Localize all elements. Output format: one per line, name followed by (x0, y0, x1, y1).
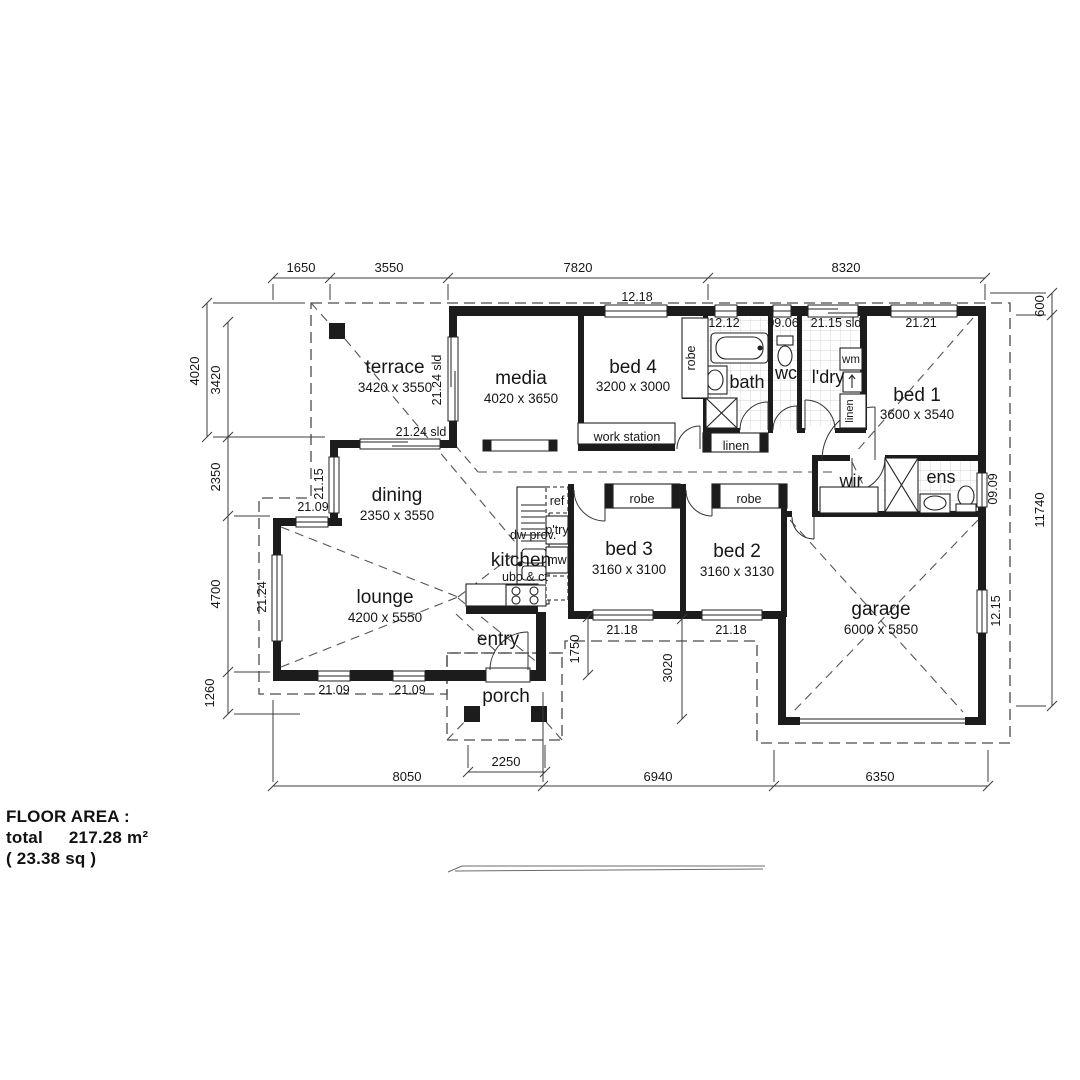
dim-3020: 3020 (660, 654, 675, 683)
room-label-bath: bath (729, 372, 764, 392)
terrace-post (329, 323, 345, 339)
room-dims-bed3: 3160 x 3100 (592, 562, 666, 577)
wlabel-2109-s1: 21.09 (318, 683, 349, 697)
bed3-door (574, 490, 605, 521)
room-label-porch: porch (482, 686, 530, 707)
dim-top-7820: 7820 (564, 260, 593, 275)
kitchen-cupboard (546, 576, 568, 600)
room-label-terrace: terrace (365, 357, 424, 378)
wlabel-0906: 09.06 (767, 316, 798, 330)
floor-area-block: FLOOR AREA : total217.28 m² ( 23.38 sq ) (6, 806, 148, 869)
floor-area-total-value: 217.28 m² (69, 827, 148, 848)
room-label-bed2: bed 2 (713, 541, 761, 562)
wc-toilet (777, 336, 793, 366)
wlabel-2118-bed3: 21.18 (606, 623, 637, 637)
room-label-bed1: bed 1 (893, 385, 941, 406)
floor-area-heading: FLOOR AREA : (6, 806, 148, 827)
dim-bottom-8050: 8050 (393, 769, 422, 784)
linen-label-bath: linen (723, 439, 749, 453)
room-dims-bed2: 3160 x 3130 (700, 564, 774, 579)
ref-label: ref (550, 494, 565, 508)
room-dims-dining: 2350 x 3550 (360, 508, 434, 523)
ens-vanity (920, 494, 950, 513)
wlabel-2115: 21.15 (312, 468, 326, 499)
wlabel-1215: 12.15 (989, 595, 1003, 626)
room-dims-bed1: 3600 x 3540 (880, 407, 954, 422)
room-dims-terrace: 3420 x 3550 (358, 380, 432, 395)
scan-artifact (448, 866, 765, 872)
floor-area-alt-value: ( 23.38 sq ) (6, 848, 148, 869)
wlabel-2124sld-v: 21.24 sld (430, 355, 444, 406)
room-label-bed3: bed 3 (605, 539, 653, 560)
wlabel-0909: 09.09 (986, 473, 1000, 504)
floor-area-total: total217.28 m² (6, 827, 148, 848)
window-21.18-bed3 (593, 610, 653, 620)
room-label-wc: wc (774, 363, 797, 383)
dimension-lines (202, 273, 1057, 791)
room-dims-garage: 6000 x 5850 (844, 622, 918, 637)
floorplan-page: { "floor_area": { "heading": "FLOOR AREA… (0, 0, 1080, 1080)
dim-right-600: 600 (1032, 295, 1047, 317)
room-label-kitchen: kitchen (491, 550, 551, 571)
ens-shower (885, 458, 918, 512)
porch-post (464, 706, 480, 722)
bath-shower (706, 398, 737, 428)
wlabel-2118-bed2: 21.18 (715, 623, 746, 637)
wlabel-1218: 12.18 (621, 290, 652, 304)
floor-area-total-label: total (6, 827, 43, 848)
dim-top-8320: 8320 (832, 260, 861, 275)
wlabel-2115sld: 21.15 sld (811, 316, 862, 330)
dim-left-4020: 4020 (187, 357, 202, 386)
media-opening (483, 440, 557, 451)
garage-door-opening (800, 719, 965, 723)
bed4-door (677, 426, 700, 449)
room-label-wir: wir (839, 471, 863, 491)
dim-right-11740: 11740 (1032, 492, 1047, 527)
wm-label: wm (841, 354, 860, 366)
room-dims-lounge: 4200 x 5550 (348, 610, 422, 625)
dim-1750: 1750 (567, 635, 582, 664)
dim-bottom-6940: 6940 (644, 769, 673, 784)
bathtub (711, 333, 768, 363)
bed2-door (686, 490, 712, 516)
window-21.24-lounge-w (272, 555, 282, 641)
room-label-ens: ens (926, 467, 955, 487)
work-station-label: work station (593, 430, 661, 444)
dim-left-4700: 4700 (208, 580, 223, 609)
wlabel-1212: 12.12 (708, 316, 739, 330)
sliding-window-21.24-dining (360, 439, 440, 449)
wlabel-2124sld-h: 21.24 sld (396, 425, 447, 439)
room-label-ldry: l'dry (812, 367, 844, 387)
window-21.09-lounge-s2 (393, 671, 425, 681)
window-12.15 (977, 590, 987, 633)
room-label-garage: garage (851, 599, 910, 620)
mw-label: mw (547, 553, 567, 567)
room-label-entry: entry (477, 629, 520, 650)
robe-label-bed4: robe (684, 345, 698, 370)
dim-porch-2250: 2250 (492, 754, 521, 769)
room-label-dining: dining (372, 485, 423, 506)
dw-prov-label: dw prov. (510, 528, 556, 542)
wlabel-2124: 21.24 (255, 581, 269, 612)
window-21.15-dining (329, 457, 339, 513)
room-dims-bed4: 3200 x 3000 (596, 379, 670, 394)
robe-label-bed2: robe (736, 492, 761, 506)
wlabel-2109-s2: 21.09 (394, 683, 425, 697)
dim-top-1650: 1650 (287, 260, 316, 275)
window-21.18-bed2 (702, 610, 762, 620)
wlabel-2109-n: 21.09 (297, 500, 328, 514)
entry-threshold (486, 668, 530, 682)
wlabel-2121: 21.21 (905, 316, 936, 330)
porch-post (531, 706, 547, 722)
window-12.18 (605, 305, 667, 317)
dim-bottom-6350: 6350 (866, 769, 895, 784)
dim-top-3550: 3550 (375, 260, 404, 275)
linen-label-ldry: linen (844, 399, 856, 422)
dim-left-3420: 3420 (208, 366, 223, 395)
ubo-ct-label: ubo & ct (502, 570, 548, 584)
floorplan-drawing: terrace 3420 x 3550 media 4020 x 3650 be… (0, 0, 1080, 1080)
garage-internal-door (792, 517, 814, 539)
dim-left-1260: 1260 (202, 679, 217, 708)
robe-label-bed3: robe (629, 492, 654, 506)
room-label-media: media (495, 368, 547, 389)
room-label-bed4: bed 4 (609, 357, 657, 378)
laundry-tub (843, 372, 862, 392)
dim-left-2350: 2350 (208, 463, 223, 492)
room-dims-media: 4020 x 3650 (484, 391, 558, 406)
room-label-lounge: lounge (356, 587, 413, 608)
window-21.09-lounge-s1 (318, 671, 350, 681)
cooktop (506, 585, 546, 606)
sliding-window-21.24 (448, 337, 458, 421)
window-21.09-lounge-n (296, 517, 328, 527)
